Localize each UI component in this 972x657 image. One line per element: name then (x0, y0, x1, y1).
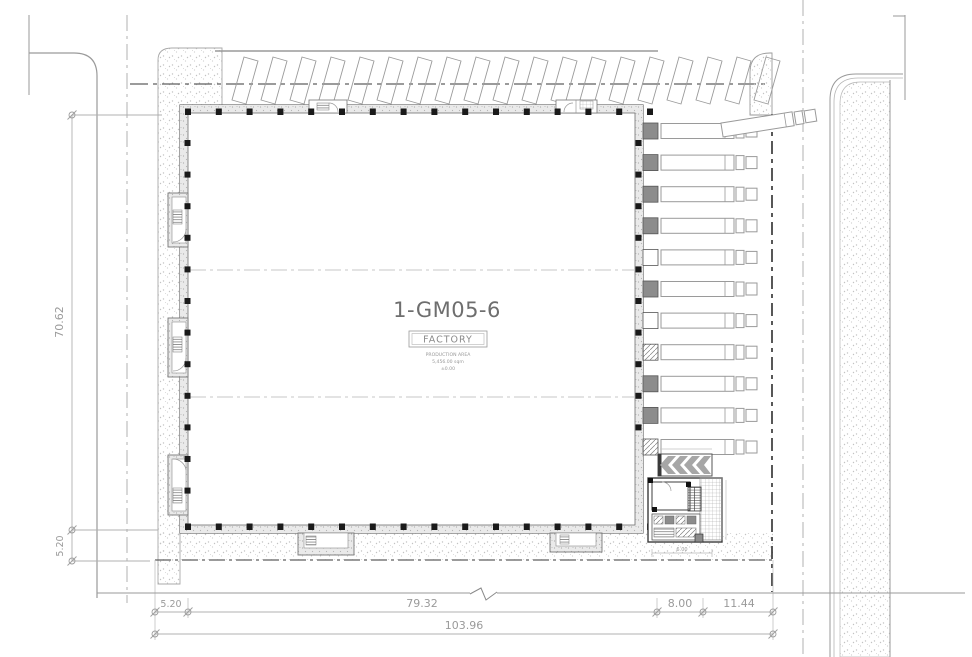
building-level-value: ±0.00 (441, 366, 455, 372)
dim-bottom-road-label: 11.44 (723, 597, 755, 610)
dim-bottom-total-label: 103.96 (445, 619, 484, 632)
left-road (29, 15, 127, 603)
dimension-bottom: 5.20 79.32 8.00 11.44 103.96 (151, 597, 778, 639)
factory-building (168, 100, 653, 555)
tile-apron (700, 478, 722, 540)
stair-alcove-3 (168, 455, 188, 515)
dim-bottom-main-label: 79.32 (406, 597, 438, 610)
site-boundary-lines (97, 560, 965, 640)
bottom-recess-1 (298, 533, 354, 555)
dim-bottom-dock-label: 8.00 (668, 597, 693, 610)
site-plan-canvas: 6.00 70.62 5.20 5.20 79.32 8.00 11.44 10… (0, 0, 972, 657)
break-symbol (470, 588, 497, 600)
building-area-title: PRODUCTION AREA (426, 352, 472, 358)
top-road (130, 51, 780, 104)
building-area-value: 5,456.00 sqm (432, 359, 464, 365)
right-sidewalk (840, 82, 890, 657)
stair-alcove-2 (168, 318, 188, 377)
office-width-label: 6.00 (676, 547, 687, 553)
curb-island (750, 53, 772, 115)
dim-bottom-offset-label: 5.20 (160, 599, 181, 610)
dim-left-height-label: 70.62 (53, 306, 66, 338)
dim-left-offset-label: 5.20 (55, 535, 66, 556)
docked-trucks (661, 124, 757, 455)
right-road (750, 0, 905, 657)
angled-parking-stalls (232, 57, 780, 104)
office-room (652, 482, 690, 510)
factory-site-plan: 6.00 70.62 5.20 5.20 79.32 8.00 11.44 10… (0, 0, 972, 657)
bottom-recess-2 (550, 533, 602, 552)
building-use-label: FACTORY (423, 335, 473, 346)
dimension-left: 70.62 5.20 (53, 111, 162, 566)
building-name-label: 1-GM05-6 (393, 298, 501, 322)
loading-dock-doors (643, 123, 658, 455)
